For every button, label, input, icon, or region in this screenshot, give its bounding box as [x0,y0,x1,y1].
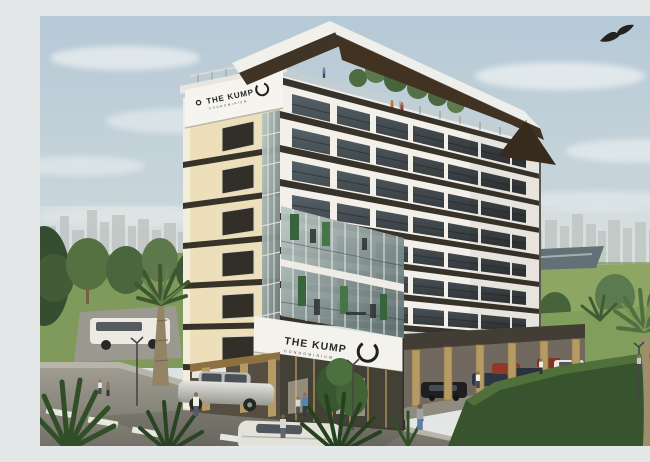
architectural-rendering: THE KUMP CONDOMINIUM THE KUMP CONDOMINIU… [40,16,650,446]
atmosphere-overlay [40,16,650,446]
